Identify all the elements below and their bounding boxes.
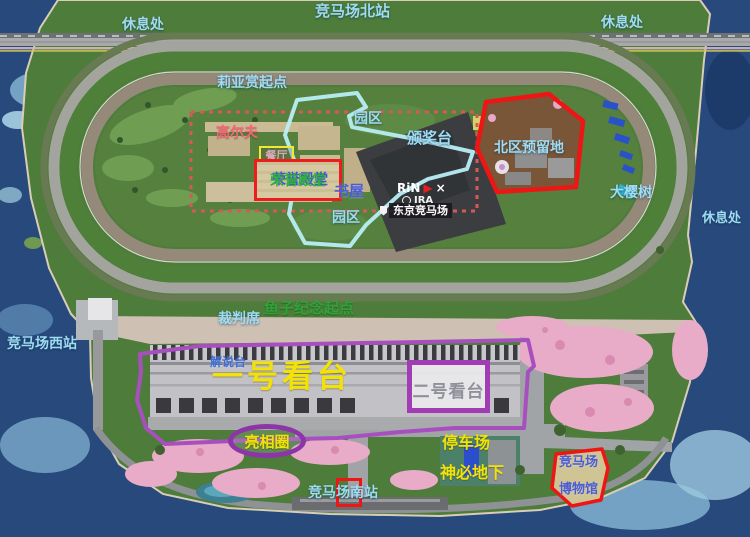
label-mystery-underground: 神必地下 xyxy=(440,465,504,481)
tokyo-racecourse-marker[interactable]: 东京竞马场 xyxy=(380,203,452,218)
tokyo-racecourse-label: 东京竞马场 xyxy=(389,203,452,218)
label-judges-stand: 裁判席 xyxy=(218,312,260,326)
label-rest-area-top-left: 休息处 xyxy=(122,18,164,32)
paddock-ring: 亮相圈 xyxy=(228,424,306,458)
hall-of-fame-box: 荣誉殿堂 xyxy=(254,159,342,201)
label-big-cherry-tree: 大樱树 xyxy=(610,186,652,200)
grandstand-2-box: 二号看台 xyxy=(407,360,490,413)
label-north-station: 竞马场北站 xyxy=(315,4,390,19)
terrain-art xyxy=(0,0,750,537)
label-golf: 高尔夫 xyxy=(216,126,258,140)
label-west-station: 竞马场西站 xyxy=(7,337,77,351)
paddock-label: 亮相圈 xyxy=(244,431,289,452)
map-marker-icon xyxy=(380,206,387,216)
label-south-station: 竞马场南站 xyxy=(308,486,378,500)
rin-logo-text: RiN xyxy=(397,181,420,195)
label-park-lower: 园区 xyxy=(332,211,360,225)
label-museum-line2: 博物馆 xyxy=(559,483,598,496)
racecourse-map-canvas[interactable]: 竞马场北站 休息处 休息处 休息处 莉亚赏起点 高尔夫 园区 颁奖台 北区预留地… xyxy=(0,0,750,537)
label-north-reserved: 北区预留地 xyxy=(494,141,564,155)
label-grandstand-1: 一号看台 xyxy=(212,362,352,393)
label-award-podium: 颁奖台 xyxy=(407,131,452,146)
rin-logo: RiN ▶ × xyxy=(397,181,446,195)
grandstand-2-label: 二号看台 xyxy=(413,377,485,402)
rin-logo-triangle-icon: ▶ xyxy=(423,182,432,194)
label-parking: 停车场 xyxy=(442,435,490,451)
label-rest-area-top-right: 休息处 xyxy=(601,16,643,30)
label-caviar-start: 鱼子纪念起点 xyxy=(264,301,354,316)
label-park-upper: 园区 xyxy=(354,112,382,126)
hall-of-fame-label: 荣誉殿堂 xyxy=(270,170,326,190)
label-lia-start: 莉亚赏起点 xyxy=(217,76,287,90)
label-book-house: 书屋 xyxy=(334,184,364,199)
rin-logo-times: × xyxy=(436,181,446,195)
label-museum-line1: 竞马场 xyxy=(559,456,598,469)
label-rest-area-right: 休息处 xyxy=(702,212,741,225)
